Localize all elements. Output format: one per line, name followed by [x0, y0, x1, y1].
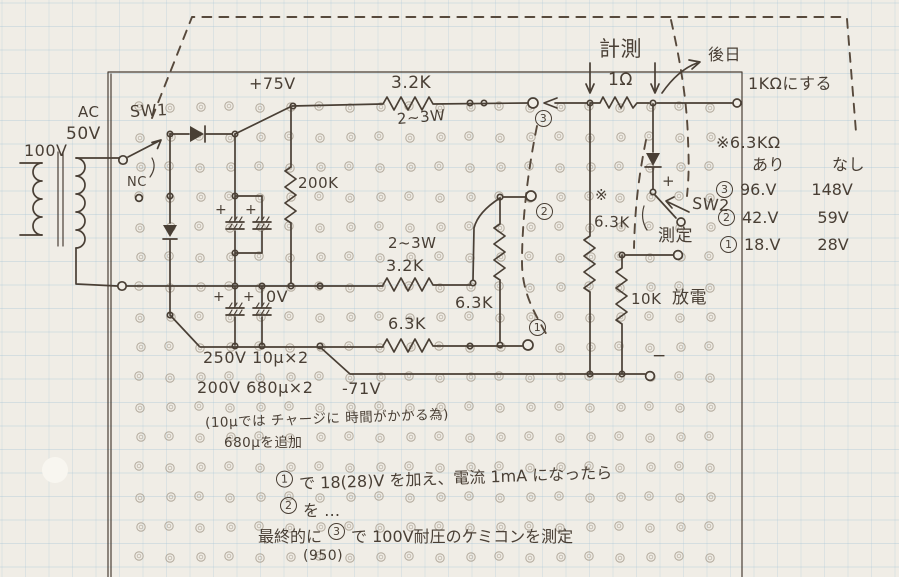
sw2-arm-contact [677, 218, 685, 226]
top-rail-and-resistor-3_2k [292, 97, 528, 110]
scanned-schematic-page: 100V AC 50V SW1 NC +75V 3.2K 2~3W 200K 0… [0, 0, 899, 577]
dashed-cut-line-mid [634, 140, 646, 248]
d3-bar [645, 167, 661, 189]
cap-bank-upper [226, 196, 271, 284]
terminal-2 [526, 191, 536, 201]
dashed-annotations [152, 17, 856, 339]
cap-lower-top [235, 287, 262, 306]
dashed-cut-line-left [522, 126, 549, 339]
zero-rail-and-resistor-3_2k-mid [123, 278, 471, 291]
transformer-core [58, 152, 63, 246]
sw1-nc-contact [136, 195, 143, 202]
cap-bank-lower [226, 287, 271, 345]
terminal-1 [523, 340, 533, 350]
cap-lower-bottom [235, 317, 262, 345]
d2-triangle [163, 225, 177, 237]
cap-upper-top-bus [235, 196, 262, 220]
diode-d2 [163, 225, 177, 314]
primary-winding [33, 163, 42, 235]
resistor-1ohm-sense [590, 97, 649, 108]
terminal-3 [528, 98, 538, 108]
measure-arrows [586, 63, 659, 93]
d2-bar [163, 239, 177, 314]
transformer [20, 152, 119, 286]
d1-bar [205, 126, 232, 142]
sw2-motion-arc [643, 206, 647, 230]
zero-rail-terminal [118, 282, 126, 290]
paper-smudge [42, 457, 68, 483]
wire-point2-branch [473, 198, 500, 280]
schematic-canvas [0, 0, 899, 577]
sw2-fixed-terminal [674, 251, 683, 260]
secondary-winding [76, 158, 85, 248]
sw1-terminal [119, 156, 127, 164]
rail-minus71 [320, 347, 645, 374]
wire-neg-to-rail [170, 315, 199, 346]
minus-terminal [646, 372, 655, 381]
graph-paper-grid [0, 0, 899, 577]
rail-end-terminal [733, 99, 741, 107]
sw1-arm-arrow [128, 140, 161, 157]
